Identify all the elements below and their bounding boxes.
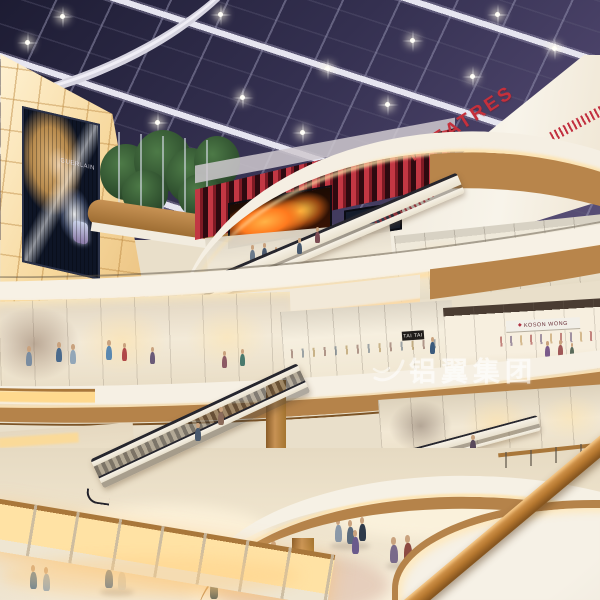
terrace-glass-post xyxy=(140,134,142,212)
balustrade-glow-line xyxy=(0,432,79,448)
person-on-escalator xyxy=(195,428,201,441)
person xyxy=(390,545,398,563)
person-on-escalator xyxy=(218,412,224,425)
person-on-escalator xyxy=(315,232,320,243)
person xyxy=(433,262,438,273)
person xyxy=(122,348,127,361)
terrace-glass-post xyxy=(184,138,186,220)
balustrade-post xyxy=(505,452,507,468)
skylight-lamp xyxy=(155,120,160,125)
skylight-lamp xyxy=(25,40,30,45)
store-sign-label: TAI TAI xyxy=(406,256,426,264)
person xyxy=(26,352,32,366)
diamond-logo-icon: ◆ xyxy=(518,323,522,328)
person-on-escalator xyxy=(297,243,302,254)
skylight-lamp xyxy=(470,74,475,79)
watermark-swoosh-icon xyxy=(372,353,406,387)
balustrade-post xyxy=(530,450,532,466)
skylight-lamp xyxy=(385,102,390,107)
skylight-lamp xyxy=(240,95,245,100)
mall-atrium-rendering: GUERLAIN THEATRES TAI TAI xyxy=(0,0,600,600)
skylight-lamp xyxy=(300,130,305,135)
skylight-lamp xyxy=(325,66,330,71)
person xyxy=(56,348,62,362)
person xyxy=(570,347,574,357)
billboard-screen: GUERLAIN xyxy=(22,106,100,280)
terrace-glass-post xyxy=(118,132,120,208)
billboard-scanlines xyxy=(24,108,98,277)
store-sign-label: KOSON WONG xyxy=(524,320,568,328)
balustrade-post xyxy=(555,447,557,463)
person xyxy=(463,261,467,271)
person xyxy=(441,260,446,271)
person xyxy=(558,345,563,356)
watermark: 铝翼集团 xyxy=(372,350,537,389)
shop-interior-glow xyxy=(0,292,293,398)
person xyxy=(106,346,112,360)
person xyxy=(240,354,245,366)
terrace-glass-post xyxy=(162,136,164,216)
skylight-lamp xyxy=(495,12,500,17)
person xyxy=(222,356,227,368)
store-sign-label: TAI TAI xyxy=(403,332,423,339)
skylight-lamp xyxy=(410,38,415,43)
skylight-lamp xyxy=(60,14,65,19)
person xyxy=(352,537,359,554)
store-sign-taitai-mid: TAI TAI xyxy=(402,330,425,341)
person xyxy=(70,350,76,364)
person xyxy=(335,525,342,542)
person xyxy=(150,352,155,364)
balustrade-floor-glow xyxy=(0,556,300,596)
person xyxy=(545,346,550,357)
skylight-lamp xyxy=(552,46,557,51)
watermark-text: 铝翼集团 xyxy=(409,350,537,389)
store-sign-taitai-upper: TAI TAI xyxy=(404,254,429,266)
corridor-level-c-left xyxy=(0,292,293,398)
skylight-lamp xyxy=(218,12,223,17)
person xyxy=(359,524,366,541)
person xyxy=(452,264,456,274)
